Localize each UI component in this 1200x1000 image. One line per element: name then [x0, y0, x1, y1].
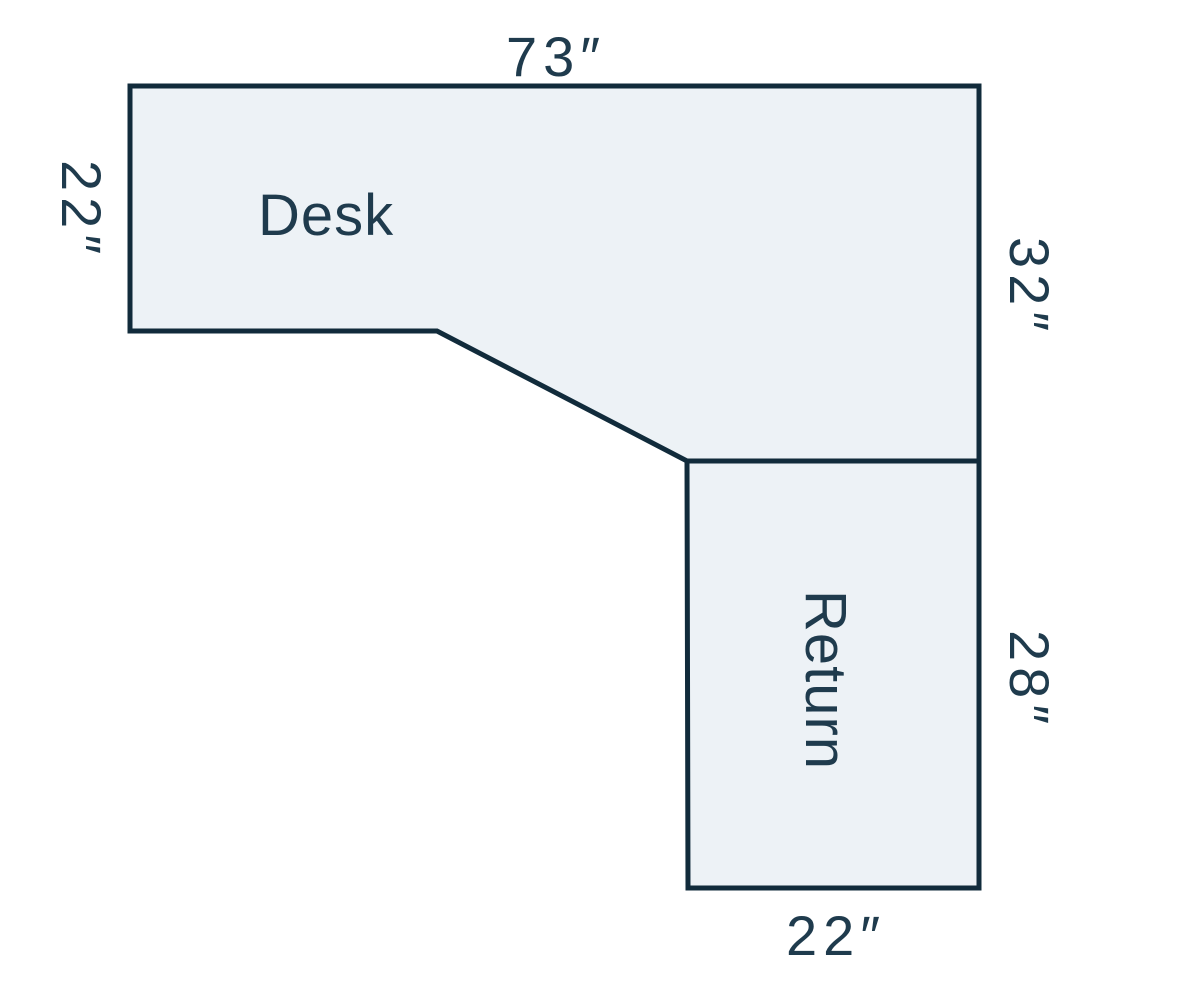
- desk-label: Desk: [258, 183, 394, 248]
- desk-surface-shape: [130, 86, 979, 461]
- return-label: Return: [793, 590, 858, 770]
- desk-right-depth-dimension: 32″: [998, 237, 1061, 337]
- return-bottom-width-dimension: 22″: [786, 904, 886, 967]
- desk-dimension-diagram: 73″ 22″ 32″ Desk Return 28″ 22″: [0, 0, 1200, 1000]
- desk-top-width-dimension: 73″: [506, 25, 606, 88]
- desk-left-depth-dimension: 22″: [50, 160, 113, 260]
- return-right-length-dimension: 28″: [998, 630, 1061, 730]
